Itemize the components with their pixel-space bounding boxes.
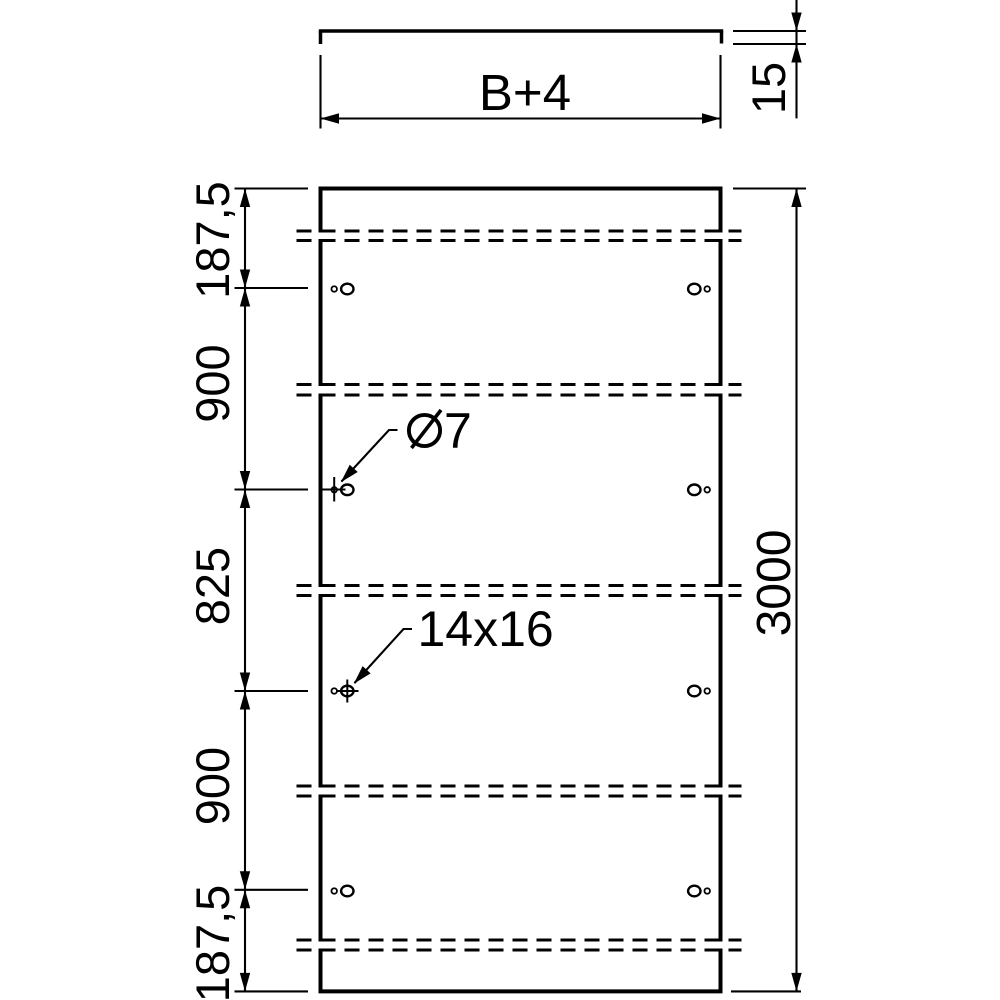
svg-text:900: 900 xyxy=(186,344,239,422)
svg-text:15: 15 xyxy=(742,62,795,114)
svg-text:B+4: B+4 xyxy=(479,64,571,121)
svg-text:3000: 3000 xyxy=(748,530,801,637)
svg-text:187,5: 187,5 xyxy=(186,181,239,299)
svg-text:7: 7 xyxy=(444,403,472,459)
svg-text:900: 900 xyxy=(186,747,239,825)
svg-text:187,5: 187,5 xyxy=(186,885,239,1000)
svg-text:14x16: 14x16 xyxy=(418,601,554,657)
svg-text:825: 825 xyxy=(186,547,239,625)
